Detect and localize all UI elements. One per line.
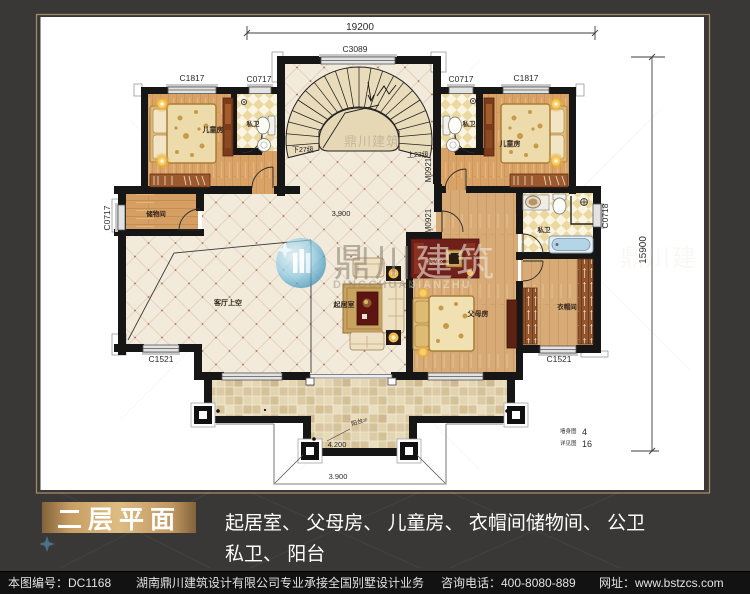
svg-text:父母房: 父母房 bbox=[467, 309, 489, 318]
svg-text:M0921: M0921 bbox=[424, 157, 433, 182]
svg-text:儿童房: 儿童房 bbox=[202, 125, 224, 134]
svg-text:私卫、 阳台: 私卫、 阳台 bbox=[225, 543, 325, 565]
svg-text:客厅上空: 客厅上空 bbox=[213, 298, 242, 307]
svg-text:私卫: 私卫 bbox=[246, 119, 261, 128]
svg-text:4: 4 bbox=[582, 427, 587, 437]
svg-text:3.900: 3.900 bbox=[329, 472, 348, 481]
svg-text:C1521: C1521 bbox=[148, 354, 173, 364]
svg-text:DINGCHUAN: DINGCHUAN bbox=[333, 279, 418, 291]
svg-text:C3089: C3089 bbox=[342, 44, 367, 54]
svg-text:详见图: 详见图 bbox=[560, 439, 577, 447]
svg-text:起居室: 起居室 bbox=[333, 300, 355, 309]
svg-text:C0717: C0717 bbox=[448, 74, 473, 84]
svg-text:C1521: C1521 bbox=[546, 354, 571, 364]
svg-text:C1817: C1817 bbox=[513, 73, 538, 83]
svg-text:C1817: C1817 bbox=[179, 73, 204, 83]
svg-text:网址：www.bstzcs.com: 网址：www.bstzcs.com bbox=[599, 576, 724, 590]
svg-text:湖南鼎川建筑设计有限公司专业承接全国别墅设计业务: 湖南鼎川建筑设计有限公司专业承接全国别墅设计业务 bbox=[136, 575, 424, 590]
svg-text:上23级: 上23级 bbox=[407, 150, 429, 159]
svg-text:C0717: C0717 bbox=[102, 205, 112, 230]
svg-text:墙身图: 墙身图 bbox=[560, 427, 577, 435]
svg-text:私卫: 私卫 bbox=[462, 119, 477, 128]
svg-text:C0717: C0717 bbox=[246, 74, 271, 84]
svg-text:16: 16 bbox=[582, 439, 592, 449]
svg-text:儿童房: 儿童房 bbox=[499, 139, 521, 148]
svg-text:C0718: C0718 bbox=[600, 203, 610, 228]
svg-text:衣帽间: 衣帽间 bbox=[557, 302, 577, 311]
svg-text:M0921: M0921 bbox=[424, 208, 433, 233]
svg-text:JIANZHU: JIANZHU bbox=[410, 279, 472, 291]
svg-text:咨询电话：400-8080-889: 咨询电话：400-8080-889 bbox=[441, 575, 576, 590]
svg-text:私卫: 私卫 bbox=[537, 225, 552, 234]
svg-text:3.900: 3.900 bbox=[332, 209, 351, 218]
svg-text:起居室、 父母房、 儿童房、 衣帽间储物间、 公卫: 起居室、 父母房、 儿童房、 衣帽间储物间、 公卫 bbox=[225, 512, 645, 534]
svg-text:下27级: 下27级 bbox=[292, 145, 314, 154]
svg-text:鼎川建筑: 鼎川建筑 bbox=[344, 134, 400, 149]
svg-text:19200: 19200 bbox=[346, 22, 374, 33]
svg-text:4.200: 4.200 bbox=[328, 440, 347, 449]
svg-text:鼎川建: 鼎川建 bbox=[620, 245, 698, 272]
svg-text:本图编号：DC1168: 本图编号：DC1168 bbox=[8, 575, 111, 590]
svg-text:储物间: 储物间 bbox=[145, 209, 166, 218]
svg-text:二层平面: 二层平面 bbox=[57, 506, 181, 534]
